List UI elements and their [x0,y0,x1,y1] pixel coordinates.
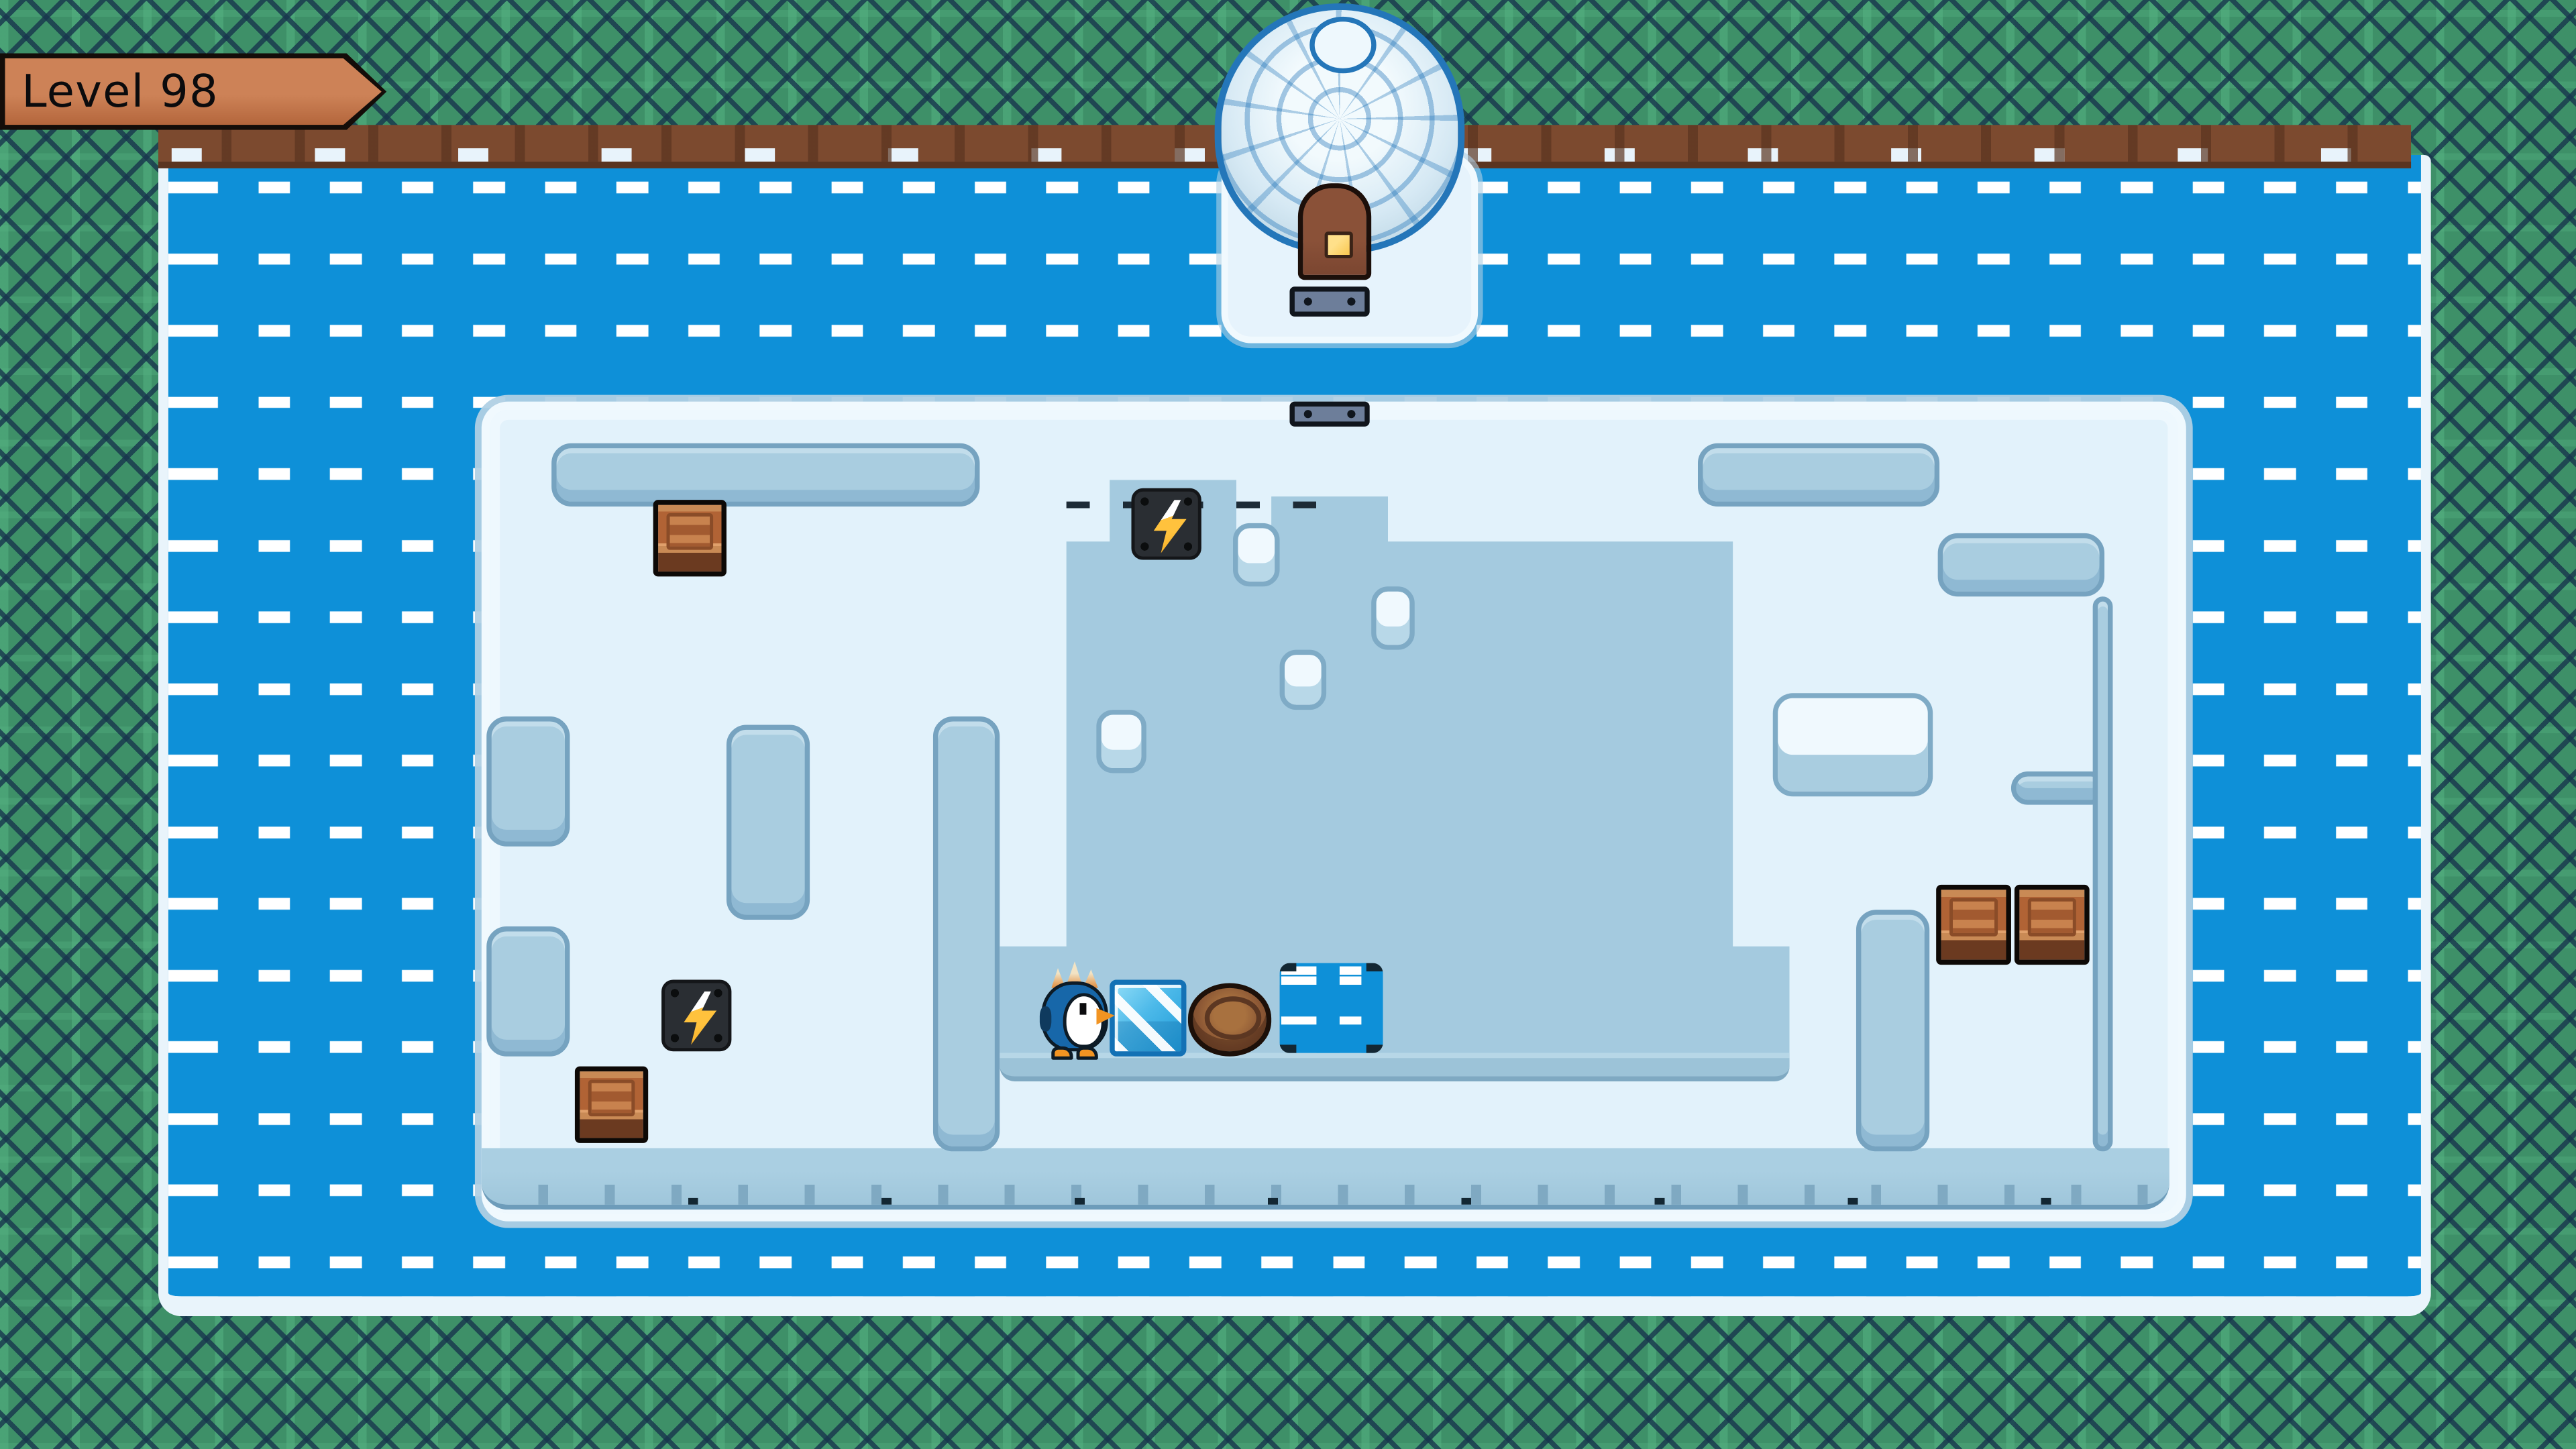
island-cliff-band [482,1148,2169,1210]
snow-mound-2 [1371,586,1415,649]
crate[interactable] [653,500,727,576]
wall-ridge-center [933,716,1000,1151]
penguin-foot [1077,1046,1098,1060]
lightning-icon [680,991,720,1044]
wall-top-right [1698,443,1939,506]
level-banner: Level 98 [0,53,386,129]
wall-left-b [486,926,570,1057]
pressure-plate-island[interactable] [1289,402,1369,427]
corridor-ledge [1000,1053,1789,1081]
penguin-wing [1040,1006,1051,1031]
crate[interactable] [2015,885,2090,965]
igloo-door[interactable] [1298,183,1371,280]
penguin-player[interactable] [1040,961,1110,1060]
penguin-foot [1051,1046,1073,1060]
crate[interactable] [575,1067,648,1143]
barrel[interactable] [1188,983,1271,1056]
ice-shelf [1773,693,1933,796]
snow-mound-3 [1280,650,1327,710]
lightning-block[interactable] [1132,488,1201,560]
level-label: Level 98 [21,53,219,129]
wall-right-upper [1938,533,2104,596]
water-hole [1280,963,1383,1053]
igloo-top-block [1309,17,1376,73]
penguin-eye [1080,1003,1087,1014]
snow-mound-4 [1096,710,1146,773]
wall-rim-line [2093,596,2113,1151]
pressure-plate-igloo[interactable] [1289,286,1369,317]
wall-left-a [486,716,570,847]
crate[interactable] [1936,885,2011,965]
wall-pillar [727,724,810,920]
igloo-door-window [1325,231,1353,258]
igloo [1215,3,1465,286]
lightning-block[interactable] [661,979,731,1051]
wall-ridge-right [1856,910,1929,1151]
lightning-icon [1150,500,1190,553]
snow-mound-1 [1233,523,1280,586]
game-viewport: Level 98 [0,0,2576,1449]
forest-background: Level 98 [0,0,2576,1449]
wall-top-left [551,443,979,506]
ice-block[interactable] [1110,979,1186,1056]
ledge-dashes [1067,502,1350,508]
